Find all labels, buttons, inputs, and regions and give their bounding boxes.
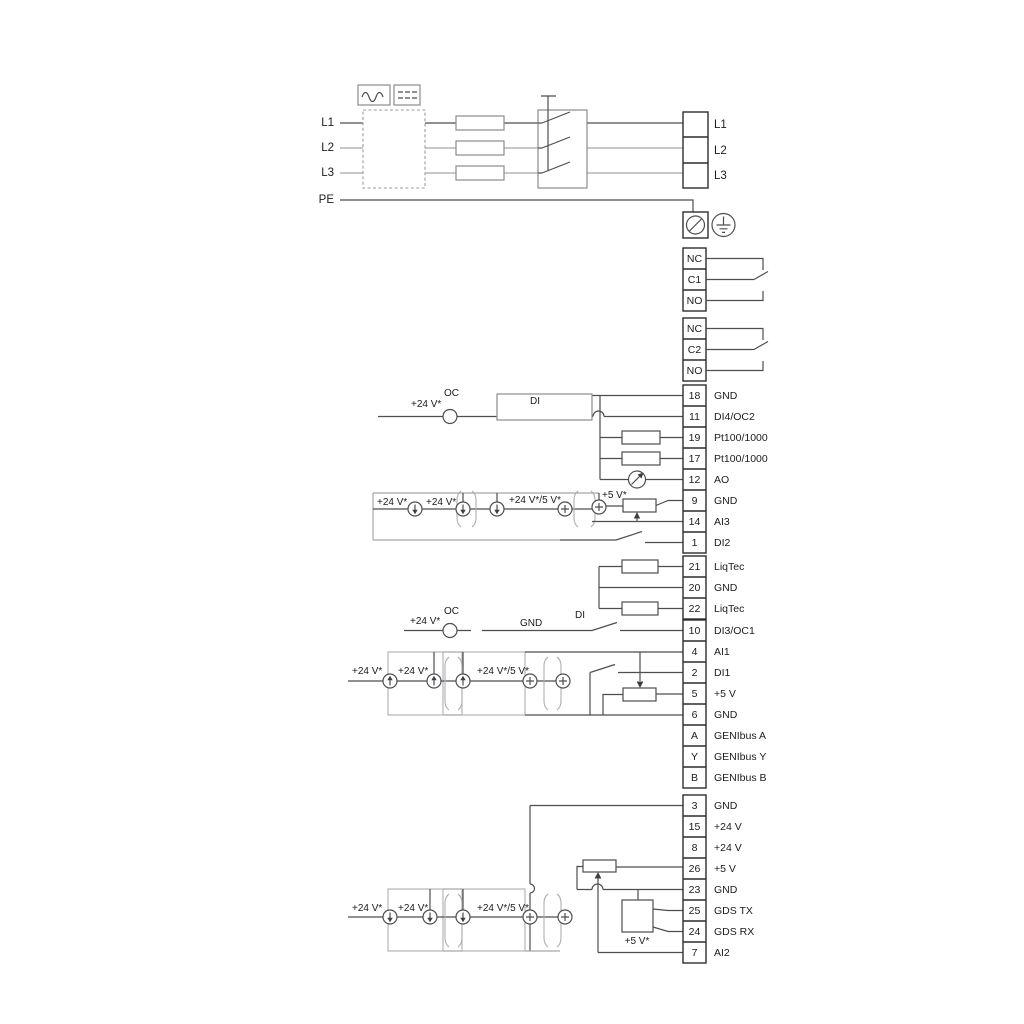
relay1-contact <box>706 259 768 301</box>
di2-switch <box>560 532 683 543</box>
option-box <box>462 889 525 951</box>
rfi-filter-box <box>363 110 425 188</box>
diagram-linework <box>0 0 1024 1024</box>
pe-label: PE <box>316 194 334 207</box>
current-source-icon <box>456 910 470 924</box>
terminal-number: 14 <box>683 516 706 528</box>
terminal-number: 9 <box>683 495 706 507</box>
di-label: DI <box>575 610 585 621</box>
current-source-icon <box>456 674 470 688</box>
terminal-number: 11 <box>683 411 706 423</box>
ai2-gds-circuit <box>348 806 683 953</box>
supply-label: +24 V*/5 V* <box>477 903 529 914</box>
terminal-label: AI2 <box>714 947 730 959</box>
gds-sensor-box <box>622 900 653 932</box>
terminal-label: LiqTec <box>714 561 744 573</box>
terminal-label: AI1 <box>714 646 730 658</box>
terminal-number: 2 <box>683 667 706 679</box>
pt100-sensors <box>600 431 683 465</box>
terminal-label: GDS RX <box>714 926 754 938</box>
supply-label: +5 V* <box>602 490 627 501</box>
ao-meter <box>600 471 683 488</box>
terminal-label: +5 V <box>714 863 736 875</box>
terminal-label: GDS TX <box>714 905 753 917</box>
dc-symbol-icon <box>394 85 420 105</box>
relay2-contact <box>706 329 768 371</box>
terminal-label: GND <box>714 495 737 507</box>
terminal-number: 1 <box>683 537 706 549</box>
terminal-label: DI2 <box>714 537 730 549</box>
terminal-number: 3 <box>683 800 706 812</box>
terminal-label: Pt100/1000 <box>714 453 768 465</box>
terminal-label: DI3/OC1 <box>714 625 755 637</box>
terminal-label: GENIbus A <box>714 730 766 742</box>
pe-wire <box>340 200 693 212</box>
supply-label: +24 V* <box>377 497 407 508</box>
potentiometer-icon <box>623 499 656 512</box>
mains-input-label: L3 <box>316 167 334 180</box>
terminal-label: GENIbus Y <box>714 751 766 763</box>
terminal-number: 7 <box>683 947 706 959</box>
terminal-label: AO <box>714 474 729 486</box>
supply-label: +24 V* <box>398 666 428 677</box>
di3-oc1-circuit <box>404 623 683 638</box>
supply-label: +24 V* <box>411 399 441 410</box>
terminal-number: 15 <box>683 821 706 833</box>
supply-label: +24 V* <box>352 903 382 914</box>
current-source-icon <box>456 502 470 516</box>
terminal-number: 8 <box>683 842 706 854</box>
terminal-number: 6 <box>683 709 706 721</box>
fuses <box>456 116 504 180</box>
main-switch <box>538 96 587 188</box>
terminal-number: 19 <box>683 432 706 444</box>
terminal-label: DI1 <box>714 667 730 679</box>
supply-label: +24 V* <box>352 666 382 677</box>
terminal-number: Y <box>683 751 706 763</box>
terminal-label: AI3 <box>714 516 730 528</box>
current-source-icon <box>427 674 441 688</box>
voltage-source-icon <box>558 910 572 924</box>
terminal-number: 22 <box>683 603 706 615</box>
terminal-number: A <box>683 730 706 742</box>
current-source-icon <box>383 910 397 924</box>
terminal-label: +5 V <box>714 688 736 700</box>
terminal-label: DI4/OC2 <box>714 411 755 423</box>
ac-symbol-icon <box>358 85 390 105</box>
oc-label: OC <box>444 388 459 399</box>
supply-label: +24 V* <box>398 903 428 914</box>
relay-terminal-label: NO <box>683 295 706 307</box>
terminal-number: 17 <box>683 453 706 465</box>
ai1-option-group <box>348 652 683 715</box>
terminal-number: 25 <box>683 905 706 917</box>
mains-input-label: L1 <box>316 117 334 130</box>
terminal-label: +24 V <box>714 842 742 854</box>
terminal-label: +24 V <box>714 821 742 833</box>
terminal-number: 23 <box>683 884 706 896</box>
mains-output-label: L1 <box>714 119 727 132</box>
terminal-number: 12 <box>683 474 706 486</box>
supply-label: +24 V* <box>410 616 440 627</box>
terminal-label: LiqTec <box>714 603 744 615</box>
current-source-icon <box>408 502 422 516</box>
terminal-label: GND <box>714 884 737 896</box>
pe-screw-terminal <box>683 212 708 238</box>
supply-label: +24 V* <box>426 497 456 508</box>
supply-label: +24 V*/5 V* <box>477 666 529 677</box>
gds-supply-label: +5 V* <box>620 936 654 947</box>
di-label: DI <box>530 396 540 407</box>
terminal-number: 26 <box>683 863 706 875</box>
terminal-number: B <box>683 772 706 784</box>
gnd-label: GND <box>520 618 542 629</box>
current-source-icon <box>490 502 504 516</box>
terminal-label: GND <box>714 582 737 594</box>
terminal-number: 4 <box>683 646 706 658</box>
potentiometer-icon <box>623 688 656 701</box>
mains-output-label: L2 <box>714 145 727 158</box>
terminal-number: 21 <box>683 561 706 573</box>
mains-output-label: L3 <box>714 170 727 183</box>
relay-terminal-label: NC <box>683 323 706 335</box>
voltage-source-icon <box>556 674 570 688</box>
oc-label: OC <box>444 606 459 617</box>
pt100-resistor-icon <box>622 431 660 444</box>
option-box <box>462 652 525 715</box>
terminal-number: 5 <box>683 688 706 700</box>
terminal-label: GND <box>714 800 737 812</box>
terminal-label: GND <box>714 390 737 402</box>
open-collector-icon <box>443 410 457 424</box>
liqtec-resistor-icon <box>622 602 658 615</box>
current-source-icon <box>383 674 397 688</box>
liqtec-resistor-icon <box>622 560 658 573</box>
terminal-number: 24 <box>683 926 706 938</box>
voltage-source-icon <box>592 500 606 514</box>
relay-terminal-label: NC <box>683 253 706 265</box>
potentiometer-icon <box>583 860 616 872</box>
terminal-number: 10 <box>683 625 706 637</box>
open-collector-icon <box>443 624 457 638</box>
pt100-resistor-icon <box>622 452 660 465</box>
wiring-diagram: L1 L2 L3 PE L1 L2 L3 NC C1 NO NC C2 NO 1… <box>0 0 1024 1024</box>
terminal-label: GENIbus B <box>714 772 767 784</box>
mains-input-label: L2 <box>316 142 334 155</box>
terminal-label: Pt100/1000 <box>714 432 768 444</box>
terminal-label: GND <box>714 709 737 721</box>
supply-label: +24 V*/5 V* <box>509 495 561 506</box>
terminal-number: 18 <box>683 390 706 402</box>
relay-terminal-label: C1 <box>683 274 706 286</box>
relay-terminal-label: C2 <box>683 344 706 356</box>
mains-wiring <box>340 123 683 173</box>
earth-symbol-icon <box>712 214 735 237</box>
relay-terminal-label: NO <box>683 365 706 377</box>
terminal-number: 20 <box>683 582 706 594</box>
mains-terminal-block <box>683 112 708 188</box>
